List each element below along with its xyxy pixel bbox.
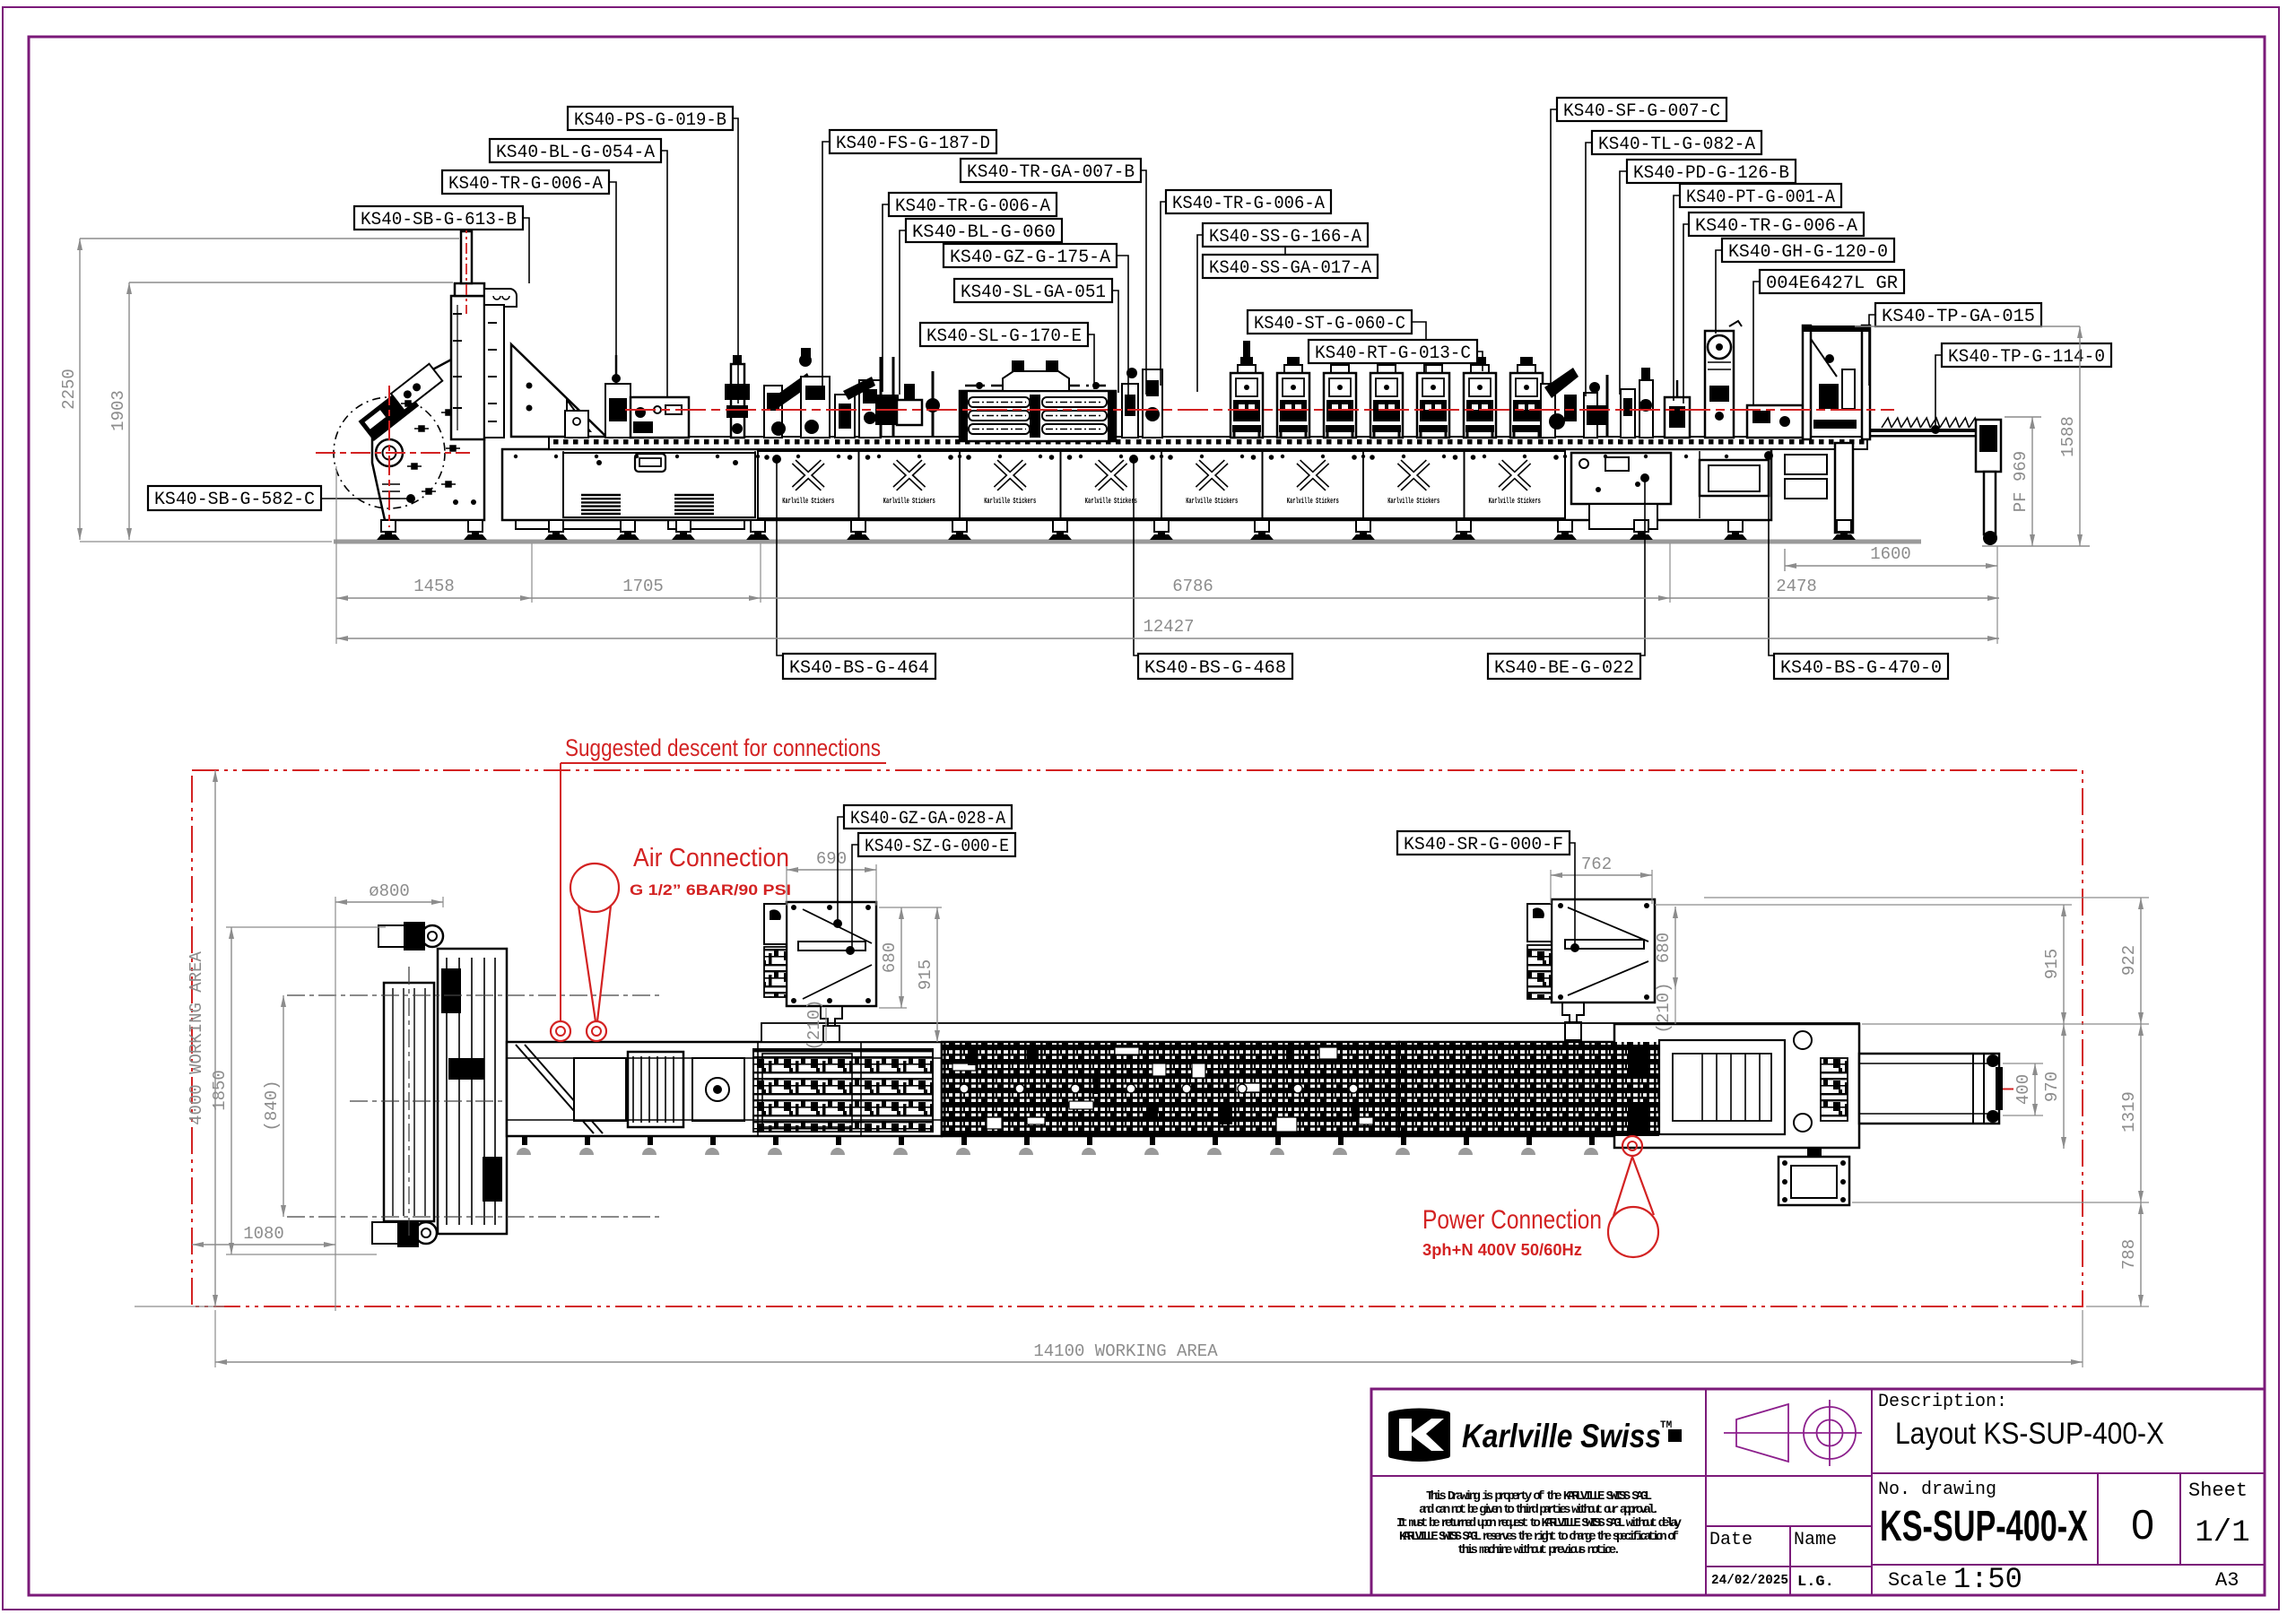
svg-text:KS40-PS-G-019-B: KS40-PS-G-019-B: [574, 110, 726, 131]
svg-text:PF 969: PF 969: [2011, 451, 2031, 512]
svg-text:+: +: [1671, 1430, 1677, 1443]
svg-text:915: 915: [916, 959, 935, 990]
svg-text:24/02/2025: 24/02/2025: [1711, 1573, 1788, 1588]
svg-text:Air Connection: Air Connection: [633, 844, 789, 872]
svg-text:1903: 1903: [109, 390, 128, 431]
svg-text:KS40-SL-GA-051: KS40-SL-GA-051: [961, 282, 1106, 303]
svg-text:KS40-TR-G-006-A: KS40-TR-G-006-A: [448, 174, 603, 195]
svg-text:KS40-SB-G-582-C: KS40-SB-G-582-C: [154, 490, 315, 510]
svg-text:KS40-SS-GA-017-A: KS40-SS-GA-017-A: [1209, 258, 1371, 279]
svg-text:KS40-TR-G-006-A: KS40-TR-G-006-A: [1172, 194, 1325, 214]
svg-text:Karlville Stickers: Karlville Stickers: [1186, 497, 1238, 506]
svg-text:1:50: 1:50: [1953, 1563, 2022, 1596]
svg-text:Karlville Stickers: Karlville Stickers: [782, 497, 834, 506]
svg-text:Sheet: Sheet: [2188, 1480, 2248, 1502]
svg-text:400: 400: [2013, 1074, 2033, 1105]
svg-text:1/1: 1/1: [2195, 1516, 2249, 1550]
svg-text:KS-SUP-400-X: KS-SUP-400-X: [1880, 1503, 2088, 1550]
svg-text:KS40-SR-G-000-F: KS40-SR-G-000-F: [1404, 835, 1563, 855]
svg-text:Karlville Stickers: Karlville Stickers: [984, 497, 1036, 506]
svg-text:No. drawing: No. drawing: [1878, 1480, 1996, 1500]
svg-text:004E6427L GR: 004E6427L GR: [1766, 273, 1898, 294]
svg-text:KS40-GH-G-120-0: KS40-GH-G-120-0: [1728, 242, 1888, 263]
svg-text:1600: 1600: [1870, 544, 1911, 564]
svg-text:L.G.: L.G.: [1797, 1574, 1834, 1591]
svg-text:KS40-PT-G-001-A: KS40-PT-G-001-A: [1686, 187, 1835, 208]
svg-text:Date: Date: [1709, 1530, 1752, 1550]
svg-text:KS40-SF-G-007-C: KS40-SF-G-007-C: [1563, 101, 1720, 122]
svg-text:KS40-BL-G-054-A: KS40-BL-G-054-A: [496, 143, 655, 163]
svg-text:(210): (210): [804, 999, 824, 1050]
svg-text:(210): (210): [1654, 982, 1674, 1033]
svg-text:Karlville Stickers: Karlville Stickers: [1387, 497, 1439, 506]
svg-text:1705: 1705: [622, 577, 664, 596]
svg-text:680: 680: [880, 942, 900, 973]
svg-text:1080: 1080: [243, 1224, 284, 1244]
svg-text:KS40-BS-G-468: KS40-BS-G-468: [1144, 658, 1286, 679]
svg-text:(840): (840): [262, 1080, 282, 1131]
svg-text:KS40-BS-G-464: KS40-BS-G-464: [789, 658, 929, 679]
svg-text:KS40-BE-G-022: KS40-BE-G-022: [1494, 658, 1634, 679]
svg-text:KS40-RT-G-013-C: KS40-RT-G-013-C: [1315, 343, 1471, 364]
svg-text:970: 970: [2042, 1072, 2062, 1102]
svg-text:2250: 2250: [59, 369, 79, 410]
svg-text:762: 762: [1581, 855, 1612, 874]
svg-text:KS40-GZ-G-175-A: KS40-GZ-G-175-A: [950, 247, 1110, 268]
svg-text:Suggested descent for connecti: Suggested descent for connections: [565, 734, 881, 761]
svg-text:12427: 12427: [1143, 617, 1194, 637]
svg-text:KS40-SL-G-170-E: KS40-SL-G-170-E: [926, 326, 1082, 347]
svg-text:A3: A3: [2215, 1569, 2239, 1592]
svg-text:Karlville Stickers: Karlville Stickers: [1287, 497, 1339, 506]
svg-text:Karlville Stickers: Karlville Stickers: [1489, 497, 1541, 506]
svg-text:4000 WORKING AREA: 4000 WORKING AREA: [187, 950, 206, 1124]
svg-text:690: 690: [816, 849, 847, 869]
svg-text:0: 0: [2131, 1501, 2154, 1548]
svg-text:KS40-TR-G-006-A: KS40-TR-G-006-A: [895, 196, 1050, 217]
svg-text:6786: 6786: [1172, 577, 1213, 596]
svg-text:Scale: Scale: [1888, 1569, 1947, 1592]
svg-text:Name: Name: [1794, 1530, 1837, 1550]
svg-text:KARLVILLE SWISS SAGL reserves: KARLVILLE SWISS SAGL reserves the right …: [1399, 1530, 1679, 1544]
svg-text:Layout KS-SUP-400-X: Layout KS-SUP-400-X: [1895, 1417, 2164, 1451]
svg-text:Karlville Stickers: Karlville Stickers: [1085, 497, 1137, 506]
svg-text:680: 680: [1654, 933, 1674, 963]
svg-text:KS40-BS-G-470-0: KS40-BS-G-470-0: [1780, 658, 1942, 679]
svg-text:Karlville Stickers: Karlville Stickers: [883, 497, 935, 506]
svg-text:ø800: ø800: [369, 881, 410, 901]
svg-text:KS40-SS-G-166-A: KS40-SS-G-166-A: [1209, 227, 1361, 247]
svg-text:KS40-TP-G-114-0: KS40-TP-G-114-0: [1948, 347, 2105, 368]
svg-text:this machine without previous: this machine without previous notice.: [1457, 1543, 1621, 1558]
svg-text:1850: 1850: [210, 1070, 230, 1111]
svg-text:788: 788: [2119, 1239, 2139, 1270]
svg-text:Karlville Swiss: Karlville Swiss: [1462, 1418, 1661, 1454]
svg-text:and can not be given to third: and can not be given to third parties wi…: [1419, 1503, 1659, 1517]
svg-text:KS40-BL-G-060: KS40-BL-G-060: [912, 222, 1056, 243]
svg-text:KS40-TR-GA-007-B: KS40-TR-GA-007-B: [967, 162, 1135, 183]
svg-text:2478: 2478: [1776, 577, 1817, 596]
svg-text:1458: 1458: [413, 577, 455, 596]
svg-text:It must be returned upon reque: It must be returned upon request to KARL…: [1396, 1516, 1683, 1531]
svg-text:Description:: Description:: [1878, 1392, 2007, 1412]
svg-text:KS40-PD-G-126-B: KS40-PD-G-126-B: [1633, 163, 1789, 184]
svg-text:KS40-TR-G-006-A: KS40-TR-G-006-A: [1695, 216, 1857, 237]
svg-text:KS40-TL-G-082-A: KS40-TL-G-082-A: [1598, 135, 1755, 155]
svg-text:KS40-GZ-GA-028-A: KS40-GZ-GA-028-A: [850, 809, 1005, 829]
svg-text:KS40-FS-G-187-D: KS40-FS-G-187-D: [836, 134, 990, 154]
svg-text:915: 915: [2042, 949, 2062, 979]
svg-text:14100 WORKING AREA: 14100 WORKING AREA: [1033, 1341, 1218, 1361]
svg-text:3ph+N 400V 50/60Hz: 3ph+N 400V 50/60Hz: [1422, 1241, 1582, 1259]
svg-text:KS40-SB-G-613-B: KS40-SB-G-613-B: [361, 210, 517, 230]
svg-text:KS40-SZ-G-000-E: KS40-SZ-G-000-E: [865, 837, 1009, 857]
svg-text:922: 922: [2119, 945, 2139, 976]
svg-text:G 1/2” 6BAR/90 PSI: G 1/2” 6BAR/90 PSI: [630, 881, 791, 898]
svg-text:KS40-TP-GA-015: KS40-TP-GA-015: [1882, 307, 2035, 327]
svg-text:Power Connection: Power Connection: [1422, 1205, 1602, 1235]
svg-text:1319: 1319: [2119, 1091, 2139, 1133]
svg-text:1588: 1588: [2058, 416, 2078, 457]
svg-text:KS40-ST-G-060-C: KS40-ST-G-060-C: [1254, 314, 1405, 334]
svg-text:This Drawing is property of th: This Drawing is property of the KARLVILL…: [1426, 1489, 1652, 1504]
